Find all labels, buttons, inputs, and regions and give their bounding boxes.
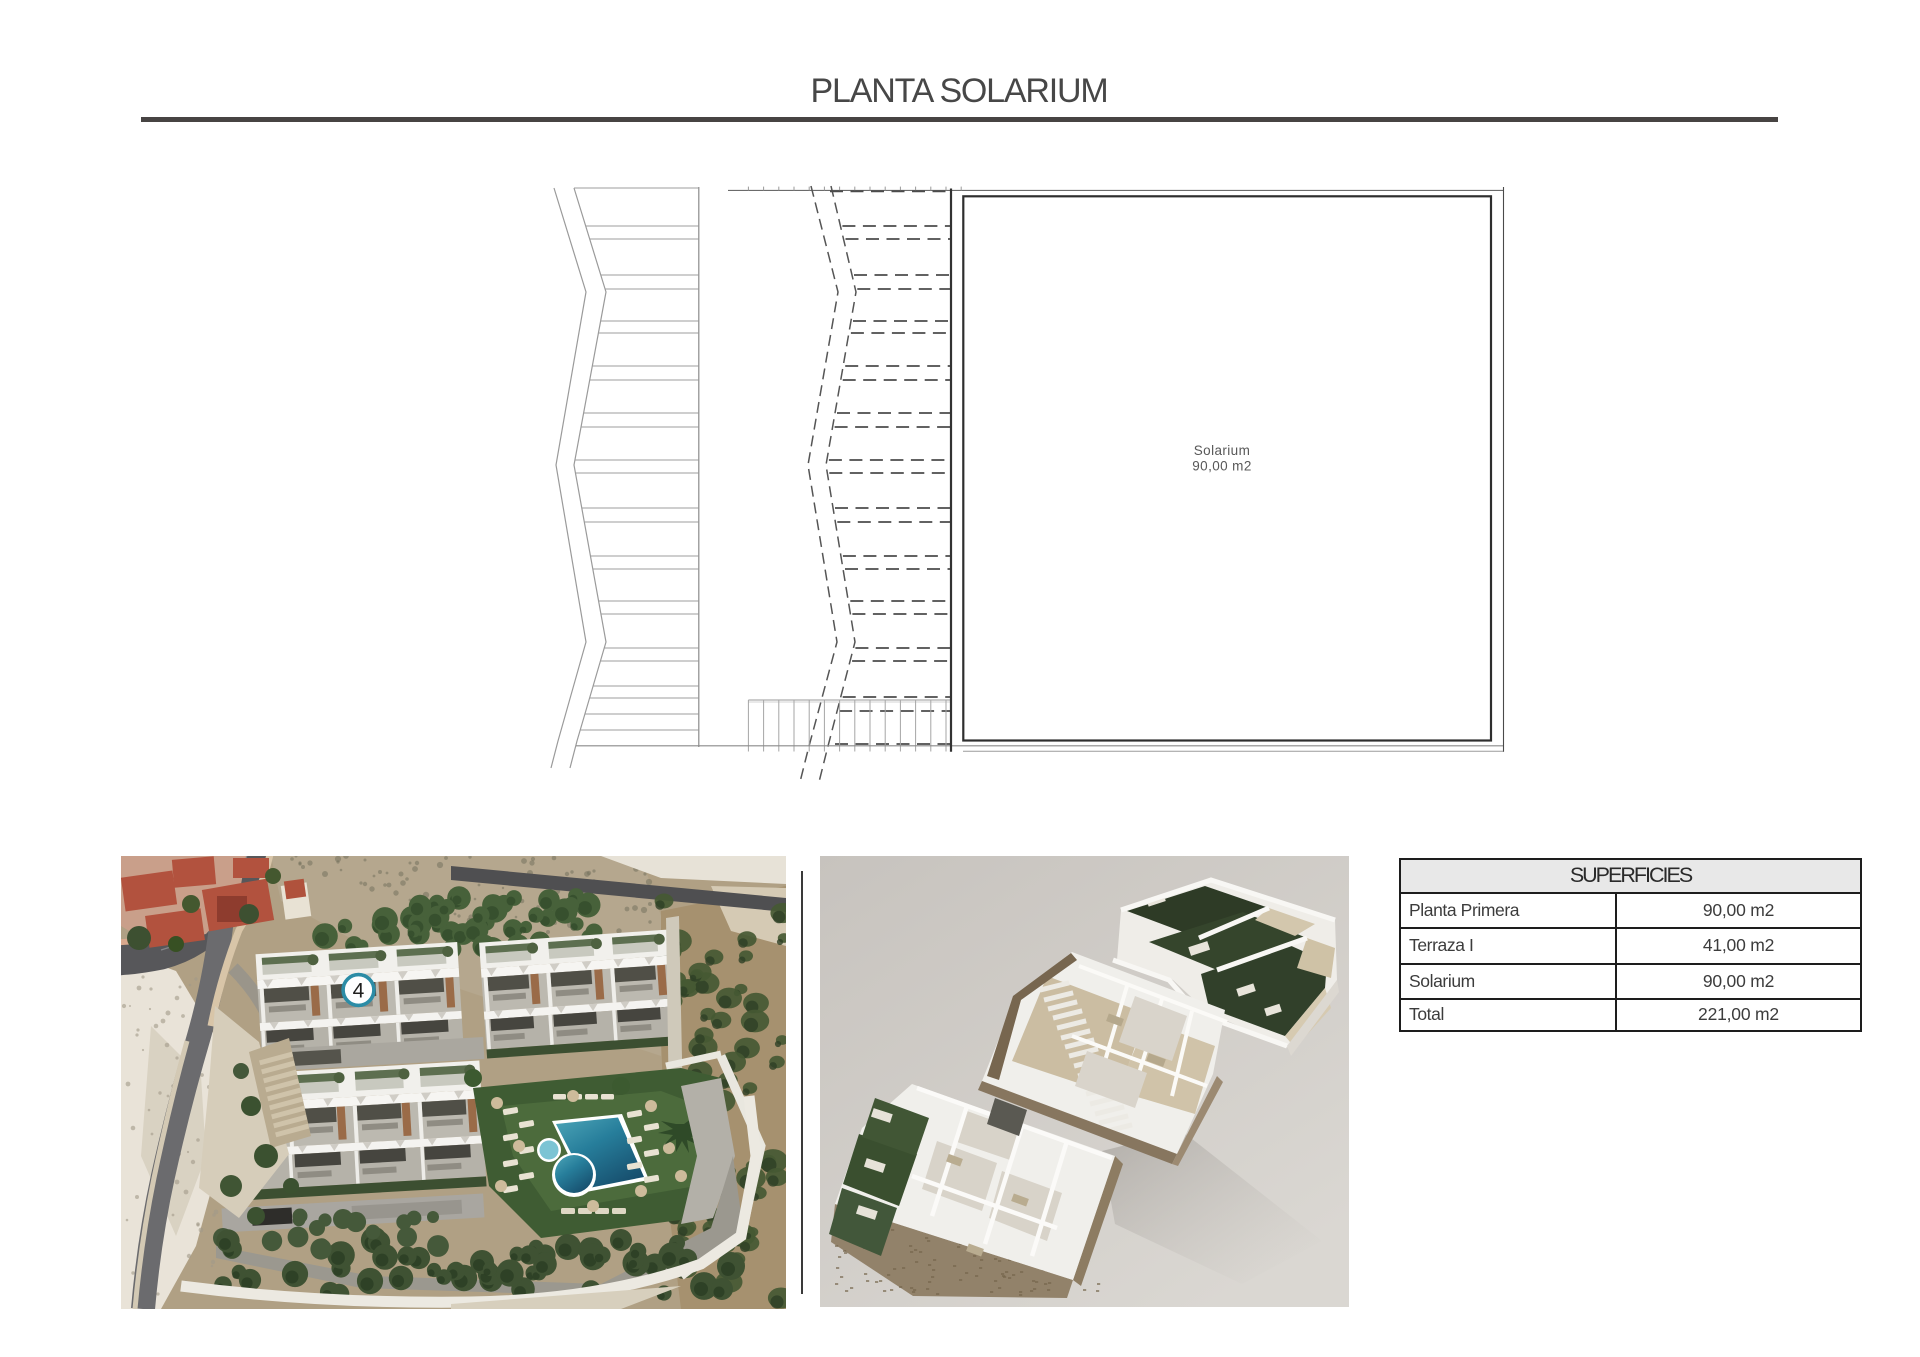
svg-text:Solarium: Solarium <box>1194 443 1250 458</box>
svg-text:4: 4 <box>353 980 365 1003</box>
svg-text:90,00 m2: 90,00 m2 <box>1192 459 1252 474</box>
